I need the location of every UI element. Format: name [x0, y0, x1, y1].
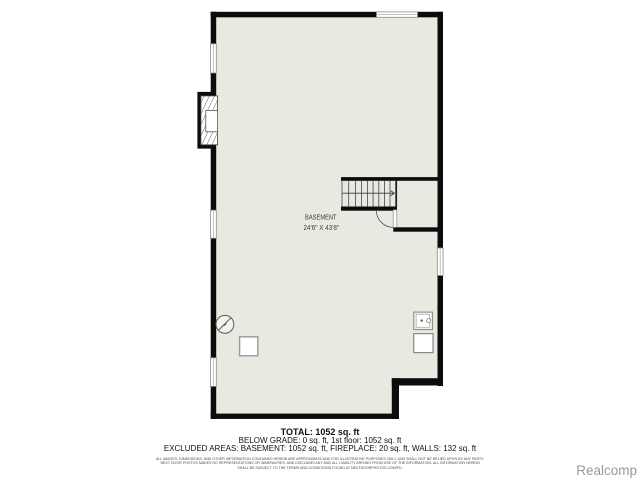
svg-text:24'6" X 43'8": 24'6" X 43'8" [304, 225, 340, 232]
svg-text:BASEMENT: BASEMENT [305, 215, 337, 222]
